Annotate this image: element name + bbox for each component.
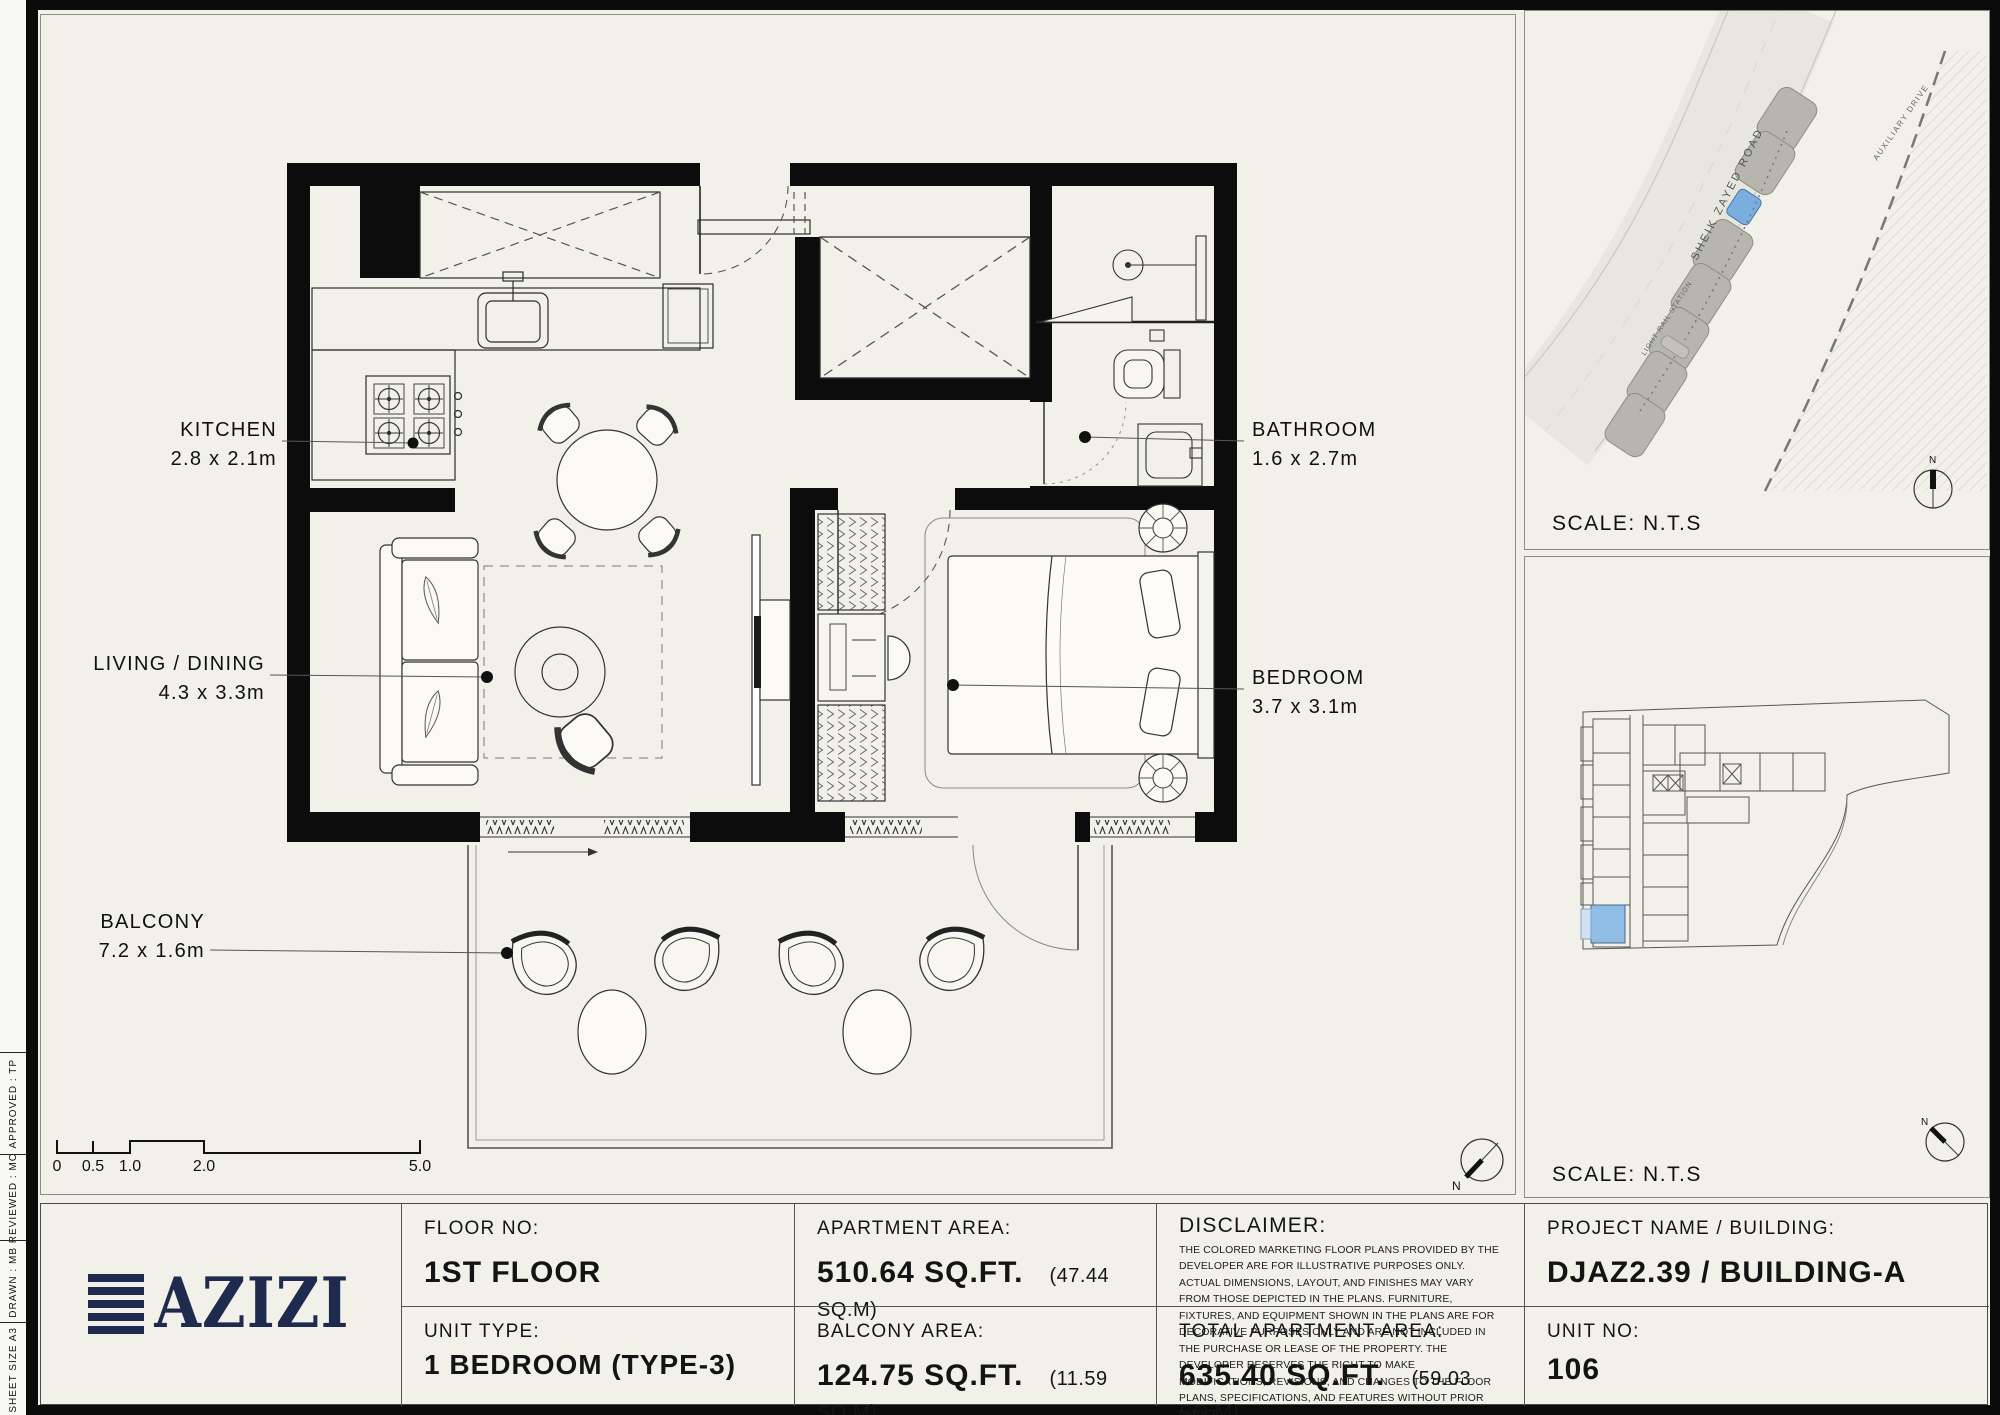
- disclaimer-cell: DISCLAIMER: THE COLORED MARKETING FLOOR …: [1156, 1204, 1524, 1306]
- room-label-living-dining: LIVING / DINING 4.3 x 3.3m: [85, 650, 265, 708]
- azizi-logo: AZIZI: [40, 1203, 398, 1405]
- azizi-logo-bars-icon: [88, 1274, 144, 1334]
- floor-no-cell: FLOOR NO: 1ST FLOOR: [401, 1204, 794, 1306]
- total-area-cell: TOTAL APARTMENT AREA: 635.40 SQ.FT.(59.0…: [1156, 1306, 1524, 1406]
- balcony-area-label: BALCONY AREA:: [817, 1321, 1134, 1343]
- scale-tick: 1.0: [119, 1158, 141, 1176]
- sheet-margin-strip: APPROVED : TP REVIEWED : MC DRAWN : MB S…: [0, 0, 26, 1415]
- balcony-area-cell: BALCONY AREA: 124.75 SQ.FT.(11.59 SQ.M): [794, 1306, 1156, 1406]
- scale-tick: 5.0: [409, 1158, 431, 1176]
- key-plan-scale-label: SCALE: N.T.S: [1552, 1163, 1702, 1187]
- apartment-area-label: APARTMENT AREA:: [817, 1218, 1134, 1240]
- unit-no-value: 106: [1547, 1353, 1967, 1387]
- sheet-size-field: SHEET SIZE A3: [0, 1322, 26, 1415]
- project-cell: PROJECT NAME / BUILDING: DJAZ2.39 / BUIL…: [1524, 1204, 1989, 1306]
- scale-tick: 0: [53, 1158, 62, 1176]
- room-label-bathroom: BATHROOM 1.6 x 2.7m: [1252, 416, 1472, 474]
- approved-field: APPROVED : TP: [0, 1052, 26, 1155]
- balcony-area-value: 124.75 SQ.FT.(11.59 SQ.M): [817, 1359, 1134, 1415]
- drawn-field: DRAWN : MB: [0, 1240, 26, 1323]
- floor-no-label: FLOOR NO:: [424, 1218, 772, 1240]
- azizi-logo-text: AZIZI: [154, 1264, 349, 1345]
- project-label: PROJECT NAME / BUILDING:: [1547, 1218, 1967, 1240]
- unit-type-cell: UNIT TYPE: 1 BEDROOM (TYPE-3): [401, 1306, 794, 1406]
- reviewed-field: REVIEWED : MC: [0, 1154, 26, 1241]
- unit-no-label: UNIT NO:: [1547, 1321, 1967, 1343]
- room-label-balcony: BALCONY 7.2 x 1.6m: [55, 908, 205, 966]
- floor-plan-panel: [40, 14, 1516, 1195]
- scale-tick: 0.5: [82, 1158, 104, 1176]
- floor-no-value: 1ST FLOOR: [424, 1256, 772, 1290]
- drawing-sheet: APPROVED : TP REVIEWED : MC DRAWN : MB S…: [0, 0, 2000, 1415]
- total-area-value: 635.40 SQ.FT.(59.03 SQ.M): [1179, 1359, 1502, 1415]
- key-plan-panel: [1524, 556, 1990, 1198]
- unit-type-value: 1 BEDROOM (TYPE-3): [424, 1349, 772, 1381]
- disclaimer-label: DISCLAIMER:: [1179, 1214, 1502, 1238]
- unit-type-label: UNIT TYPE:: [424, 1321, 772, 1343]
- apartment-area-cell: APARTMENT AREA: 510.64 SQ.FT.(47.44 SQ.M…: [794, 1204, 1156, 1306]
- room-label-bedroom: BEDROOM 3.7 x 3.1m: [1252, 664, 1472, 722]
- site-map-scale-label: SCALE: N.T.S: [1552, 512, 1702, 536]
- project-value: DJAZ2.39 / BUILDING-A: [1547, 1256, 1967, 1290]
- room-label-kitchen: KITCHEN 2.8 x 2.1m: [97, 416, 277, 474]
- site-map-panel: [1524, 10, 1990, 550]
- scale-tick: 2.0: [193, 1158, 215, 1176]
- unit-no-cell: UNIT NO: 106: [1524, 1306, 1989, 1406]
- total-area-label: TOTAL APARTMENT AREA:: [1179, 1321, 1502, 1343]
